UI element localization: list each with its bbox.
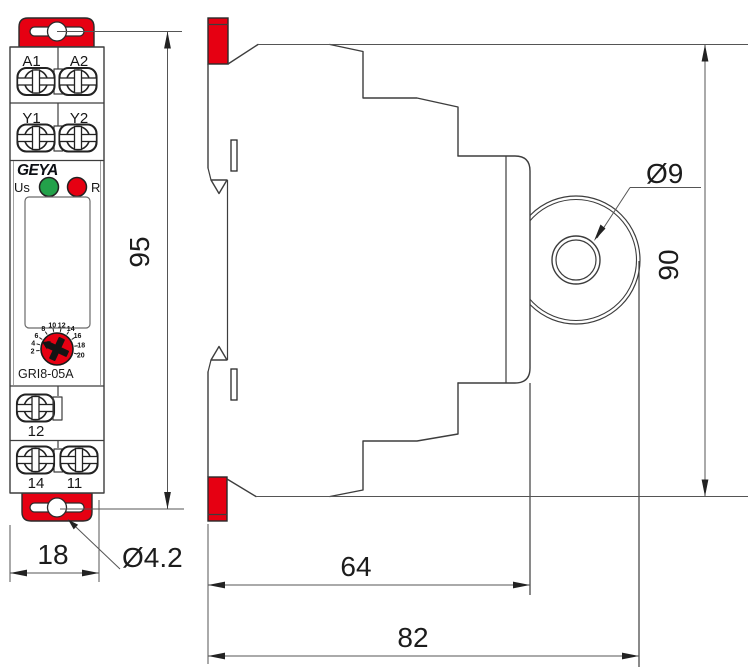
relay-dimension-drawing: A1 A2 Y1 Y2 GEYA Us R 2468101214161820 G… bbox=[0, 0, 750, 669]
terminal-label-14: 14 bbox=[28, 475, 45, 492]
dial-scale-number: 4 bbox=[31, 341, 35, 348]
arrowhead bbox=[164, 32, 171, 49]
dim-text-hole-front: Ø4.2 bbox=[122, 542, 183, 573]
terminal-screw-y1 bbox=[18, 125, 55, 152]
led-green bbox=[40, 178, 59, 197]
dim-text-64: 64 bbox=[340, 551, 371, 582]
dial-scale-number: 20 bbox=[77, 352, 85, 359]
dial-scale-number: 10 bbox=[48, 323, 56, 330]
side-slot bbox=[231, 369, 237, 400]
led-us-label: Us bbox=[14, 180, 30, 195]
dim-text-95: 95 bbox=[124, 236, 155, 267]
dial-scale-number: 2 bbox=[31, 349, 35, 356]
dial-scale-number: 6 bbox=[35, 333, 39, 340]
dimensions: 95 18 Ø4.2 64 82 90 Ø9 bbox=[10, 32, 748, 665]
mounting-hole-outer bbox=[552, 236, 600, 284]
arrowhead bbox=[164, 492, 171, 509]
dim-text-18: 18 bbox=[37, 539, 68, 570]
technical-drawing-page: A1 A2 Y1 Y2 GEYA Us R 2468101214161820 G… bbox=[0, 0, 750, 669]
dim-text-82: 82 bbox=[397, 622, 428, 653]
terminal-screw-a2 bbox=[60, 68, 97, 95]
dim-text-90: 90 bbox=[653, 249, 684, 280]
side-step bbox=[208, 360, 211, 372]
arrowhead bbox=[208, 653, 225, 660]
terminal-screw-14 bbox=[17, 447, 54, 474]
front-view: A1 A2 Y1 Y2 GEYA Us R 2468101214161820 G… bbox=[10, 18, 104, 521]
dial-scale-number: 14 bbox=[67, 326, 75, 333]
terminal-label-11: 11 bbox=[67, 475, 83, 492]
dim-text-hole-side: Ø9 bbox=[646, 158, 683, 189]
terminal-screw-11 bbox=[61, 447, 98, 474]
din-hook-top bbox=[211, 180, 227, 194]
side-slot bbox=[231, 140, 237, 171]
dial-scale-number: 8 bbox=[41, 326, 45, 333]
arrowhead bbox=[10, 570, 27, 577]
side-step bbox=[208, 168, 211, 180]
arrowhead bbox=[513, 582, 530, 589]
mounting-tab-fill bbox=[458, 156, 530, 383]
led-r-label: R bbox=[91, 180, 100, 195]
brand-logo: GEYA bbox=[17, 162, 58, 179]
din-hook-bottom bbox=[211, 347, 227, 361]
marking-label-panel bbox=[25, 197, 90, 328]
arrowhead bbox=[622, 653, 639, 660]
side-bottom-profile bbox=[330, 383, 458, 497]
arrowhead bbox=[702, 480, 709, 497]
side-top-profile bbox=[330, 45, 458, 157]
side-top-chamfer bbox=[228, 45, 258, 65]
model-number: GRI8-05A bbox=[18, 367, 74, 381]
terminal-screw-a1 bbox=[18, 68, 55, 95]
front-bottom-clip-hole bbox=[48, 498, 67, 517]
terminal-label-12: 12 bbox=[28, 423, 45, 440]
dial-scale-number: 18 bbox=[77, 343, 85, 350]
terminal-screw-y2 bbox=[60, 125, 97, 152]
arrowhead bbox=[702, 45, 709, 62]
terminal-screw-12 bbox=[17, 395, 54, 422]
side-view bbox=[208, 18, 640, 667]
dial-scale-number: 12 bbox=[58, 323, 66, 330]
side-bottom-chamfer bbox=[227, 479, 256, 497]
arrowhead bbox=[208, 582, 225, 589]
arrowhead bbox=[82, 570, 99, 577]
dial-scale-number: 16 bbox=[74, 333, 82, 340]
led-red bbox=[68, 178, 87, 197]
